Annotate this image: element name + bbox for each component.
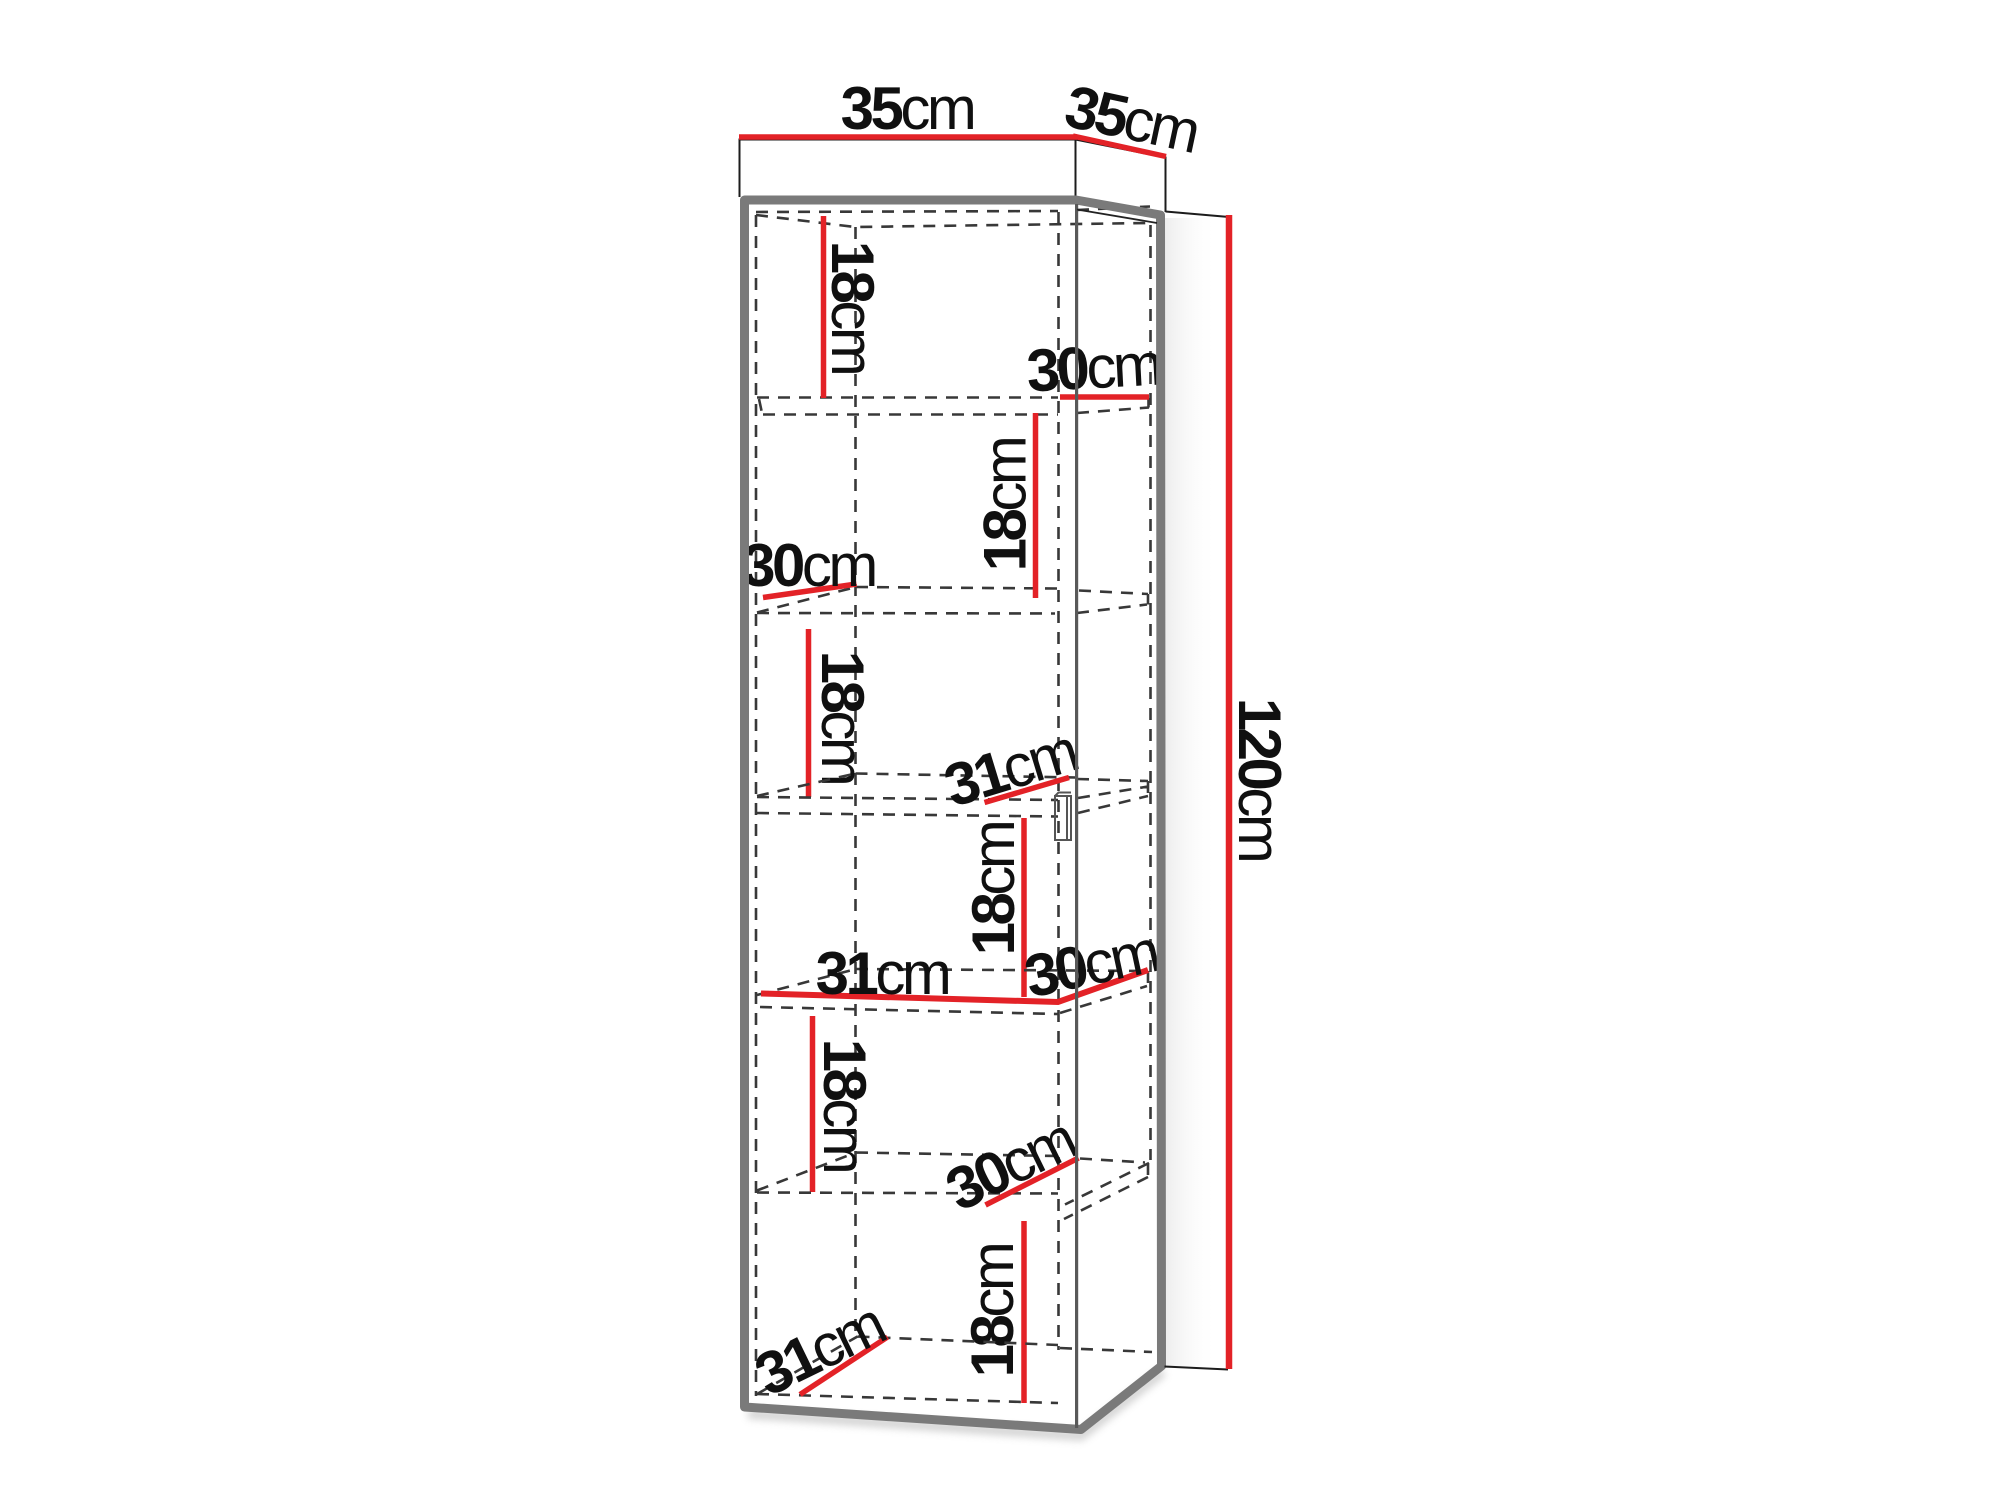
svg-text:30cm: 30cm — [1025, 331, 1162, 405]
svg-text:18cm: 18cm — [960, 822, 1027, 955]
svg-text:18cm: 18cm — [809, 651, 876, 784]
svg-text:31cm: 31cm — [816, 940, 949, 1007]
svg-text:18cm: 18cm — [959, 1244, 1026, 1377]
svg-text:18cm: 18cm — [819, 241, 886, 374]
svg-text:120cm: 120cm — [1226, 698, 1293, 861]
svg-text:18cm: 18cm — [972, 438, 1039, 571]
svg-text:30cm: 30cm — [742, 532, 875, 599]
svg-text:35cm: 35cm — [841, 75, 974, 142]
